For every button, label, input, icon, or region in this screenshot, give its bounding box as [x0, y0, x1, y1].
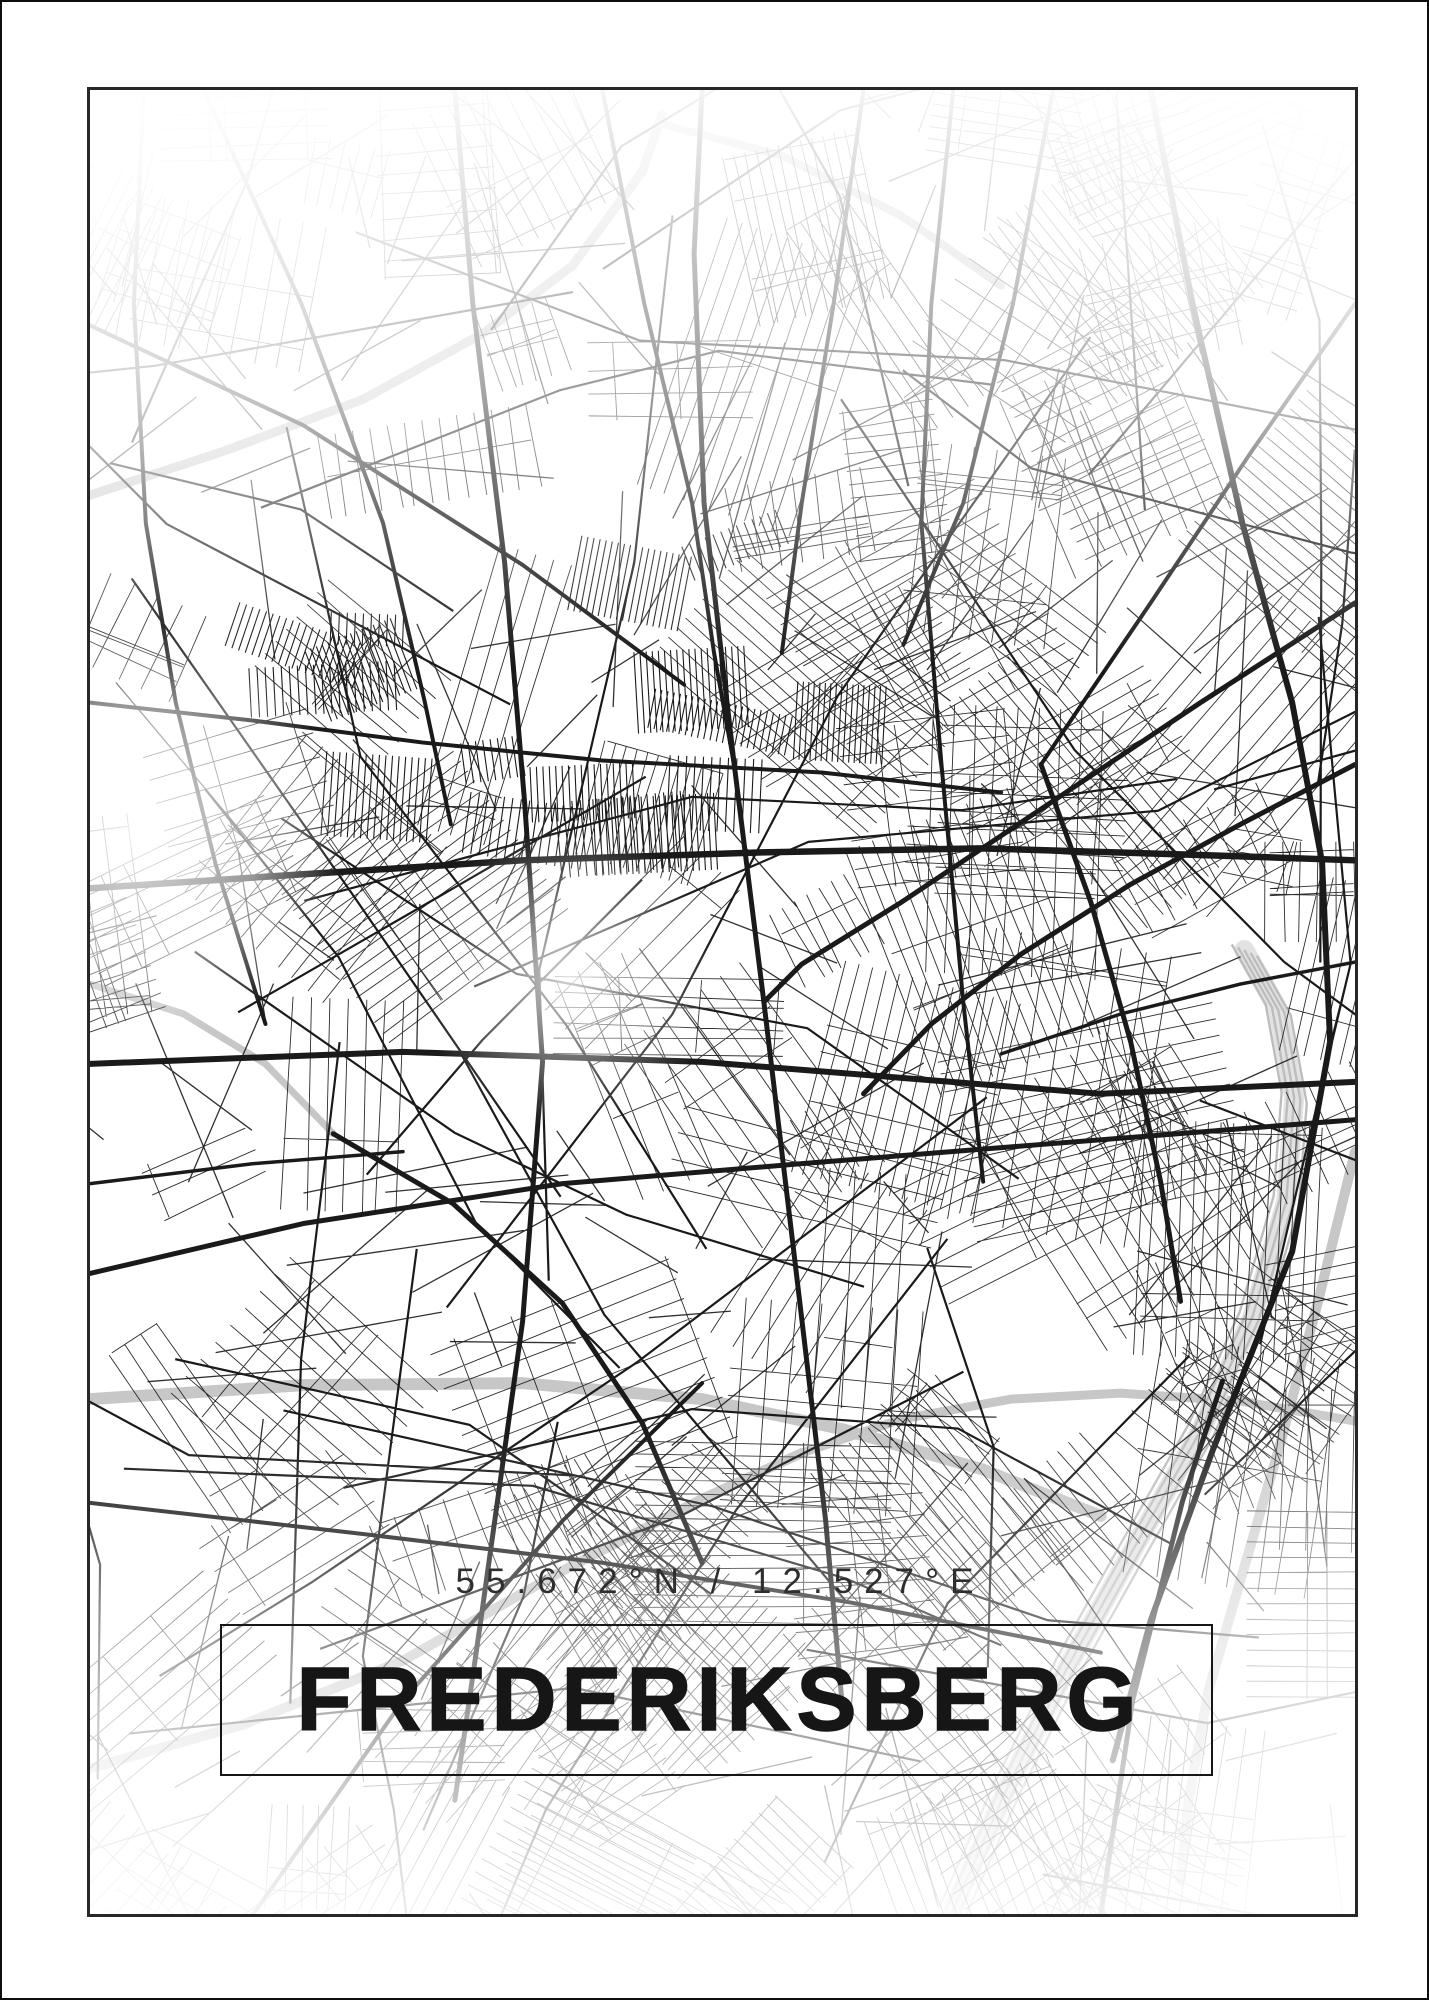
coordinates-label: 55.672°N / 12.527°E [2, 1564, 1427, 1599]
title-box: FREDERIKSBERG [220, 1624, 1213, 1776]
poster: 55.672°N / 12.527°E FREDERIKSBERG [0, 0, 1429, 2000]
title-label: FREDERIKSBERG [291, 1655, 1141, 1745]
